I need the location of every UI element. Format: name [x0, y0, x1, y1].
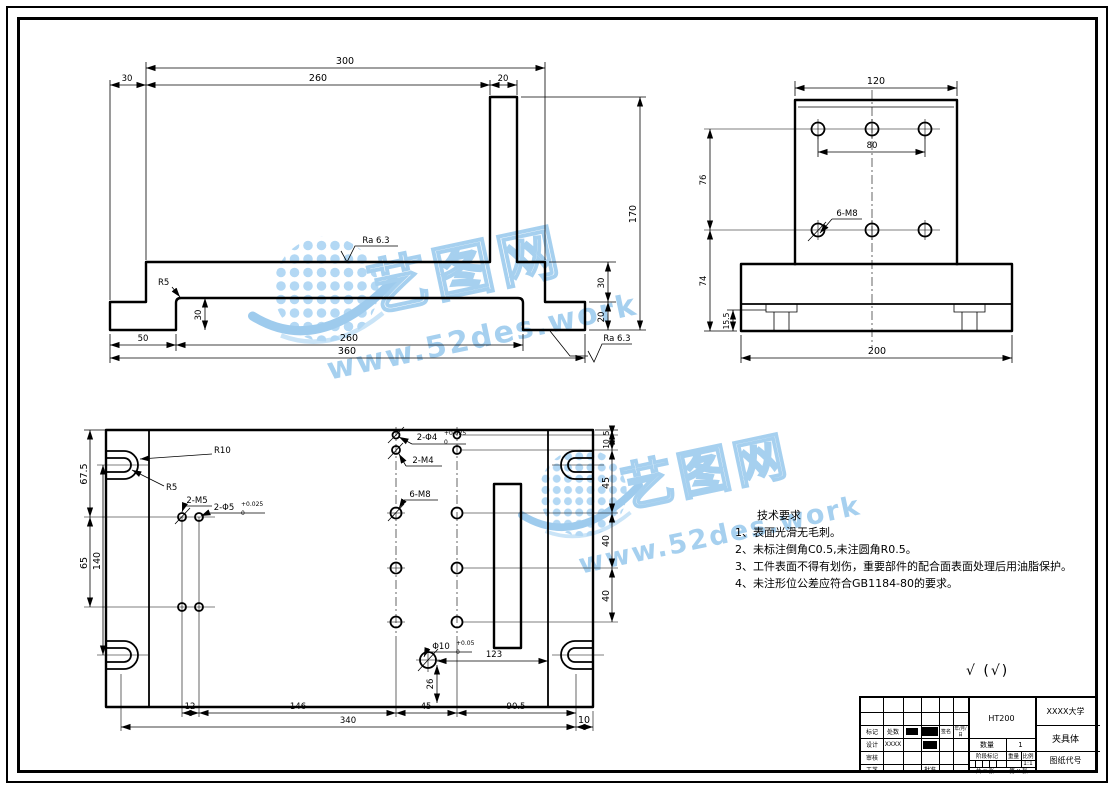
- tb-col-mark: 标记: [861, 725, 883, 738]
- dim-label: 20: [597, 312, 607, 323]
- dim-label: 170: [628, 205, 639, 223]
- tech-req-title: 技术要求: [757, 507, 1107, 524]
- tolerance-sup: +0.05: [456, 640, 475, 647]
- dim-label: 40: [601, 535, 612, 547]
- dim-label: 146: [290, 702, 306, 712]
- drawing-sheet: 艺图网 www.52des.work 艺图网 www.52des.work: [0, 0, 1116, 791]
- drawing-canvas: 300 30 260 20 170 30 20 R5 30 50 260 360…: [0, 0, 1116, 791]
- redacted-cell: [906, 728, 918, 735]
- dim-label: 30: [122, 74, 133, 84]
- dim-label: 26: [426, 679, 436, 690]
- tb-drawing-no: 图纸代号: [1035, 751, 1096, 770]
- dim-label: 76: [699, 175, 709, 186]
- tolerance-sub: 0: [241, 510, 245, 517]
- tb-col-sign: 签名: [939, 725, 953, 738]
- tb-col-count: 处数: [883, 725, 903, 738]
- radius-label: R5: [158, 278, 169, 288]
- title-block: 标记 处数 签名 年/月/日 设计 XXXX 审核 工艺 批准 HT200 数量…: [859, 696, 1098, 772]
- roughness-label: Ra 6.3: [362, 236, 389, 246]
- tb-company: XXXX大学: [1035, 698, 1096, 725]
- dim-label: 90.5: [507, 702, 526, 712]
- tb-sheet-no: 第 X 张: [1002, 767, 1035, 774]
- tolerance-sub: 0: [444, 439, 448, 446]
- dim-label: 10: [578, 715, 590, 726]
- tb-scale-value: 1:1: [1021, 760, 1035, 767]
- dim-label: 10: [602, 439, 611, 449]
- check-icon: √: [966, 663, 977, 679]
- plan-view: 67.5 65 140 R10 R5 2-M5 2-Φ5 +0.025 0 2-…: [79, 427, 618, 731]
- hole-callout: 6-M8: [409, 490, 430, 500]
- front-view: 300 30 260 20 170 30 20 R5 30 50 260 360…: [110, 56, 646, 363]
- hole-callout: 6-M8: [836, 209, 857, 219]
- dim-label: 67.5: [79, 463, 90, 484]
- hole-callout: 2-Φ4: [417, 433, 438, 443]
- tb-stage-label: 阶段标记: [968, 751, 1006, 760]
- surface-finish-note: √ (√): [966, 663, 1009, 679]
- dim-label: 360: [338, 346, 356, 357]
- radius-label: R10: [214, 446, 231, 456]
- tolerance-sub: 0: [456, 649, 460, 656]
- dim-label: 40: [601, 590, 612, 602]
- dim-label: 120: [867, 76, 885, 87]
- dim-label: 45: [601, 477, 612, 489]
- tb-row-check: 审核: [861, 751, 883, 764]
- tb-sheets: 共 X 张: [968, 767, 1002, 774]
- dim-label: 74: [699, 276, 709, 287]
- tb-qty-value: 1: [1006, 738, 1035, 751]
- dim-label: 123: [486, 650, 502, 660]
- tolerance-sup: +0.025: [444, 430, 466, 437]
- dim-label: 200: [868, 346, 886, 357]
- dim-label: 30: [597, 278, 607, 289]
- redacted-cell: [923, 741, 937, 749]
- tb-weight-label: 重量: [1006, 751, 1021, 760]
- tb-col-date: 年/月/日: [953, 725, 968, 738]
- hole-callout: 2-Φ5: [214, 503, 235, 513]
- dim-label: 300: [336, 56, 354, 67]
- dim-label: 5: [602, 430, 611, 435]
- tb-row-process: 工艺: [861, 764, 883, 774]
- technical-requirements: 技术要求 1、表面光滑无毛刺。 2、未标注倒角C0.5,未注圆角R0.5。 3、…: [735, 507, 1107, 592]
- dim-label: 12: [185, 702, 196, 712]
- tech-req-item: 3、工件表面不得有划伤，重要部件的配合面表面处理后用油脂保护。: [735, 558, 1107, 575]
- check-paren-icon: (√): [983, 663, 1009, 679]
- tolerance-sup: +0.025: [241, 501, 263, 508]
- dim-label: 45: [421, 702, 432, 712]
- dim-label: 80: [867, 141, 878, 151]
- dim-label: 140: [92, 552, 103, 570]
- tech-req-item: 4、未注形位公差应符合GB1184-80的要求。: [735, 575, 1107, 592]
- dim-label: 30: [194, 310, 204, 321]
- tech-req-item: 2、未标注倒角C0.5,未注圆角R0.5。: [735, 541, 1107, 558]
- hole-callout: Φ10: [432, 642, 450, 652]
- tb-design-name: XXXX: [883, 738, 903, 751]
- dim-label: 260: [340, 333, 358, 344]
- dim-label: 50: [138, 334, 149, 344]
- tb-cell-approve: 批准: [921, 764, 939, 774]
- tb-material: HT200: [968, 698, 1035, 738]
- dim-label: 20: [498, 74, 509, 84]
- tb-scale-label: 比例: [1021, 751, 1035, 760]
- tb-qty-label: 数量: [968, 738, 1006, 751]
- redacted-cell: [922, 727, 938, 736]
- tech-req-item: 1、表面光滑无毛刺。: [735, 524, 1107, 541]
- side-view: 120 80 76 74 15.5 200 6-M8: [699, 76, 1012, 363]
- hole-callout: 2-M4: [412, 456, 433, 466]
- roughness-label: Ra 6.3: [603, 334, 630, 344]
- hole-callout: 2-M5: [186, 496, 207, 506]
- tb-part-name: 夹具体: [1035, 725, 1096, 751]
- dim-label: 65: [79, 557, 90, 569]
- tb-row-design: 设计: [861, 738, 883, 751]
- dim-label: 260: [309, 73, 327, 84]
- radius-label: R5: [166, 483, 177, 493]
- dim-label: 340: [340, 716, 356, 726]
- dim-label: 15.5: [722, 312, 731, 329]
